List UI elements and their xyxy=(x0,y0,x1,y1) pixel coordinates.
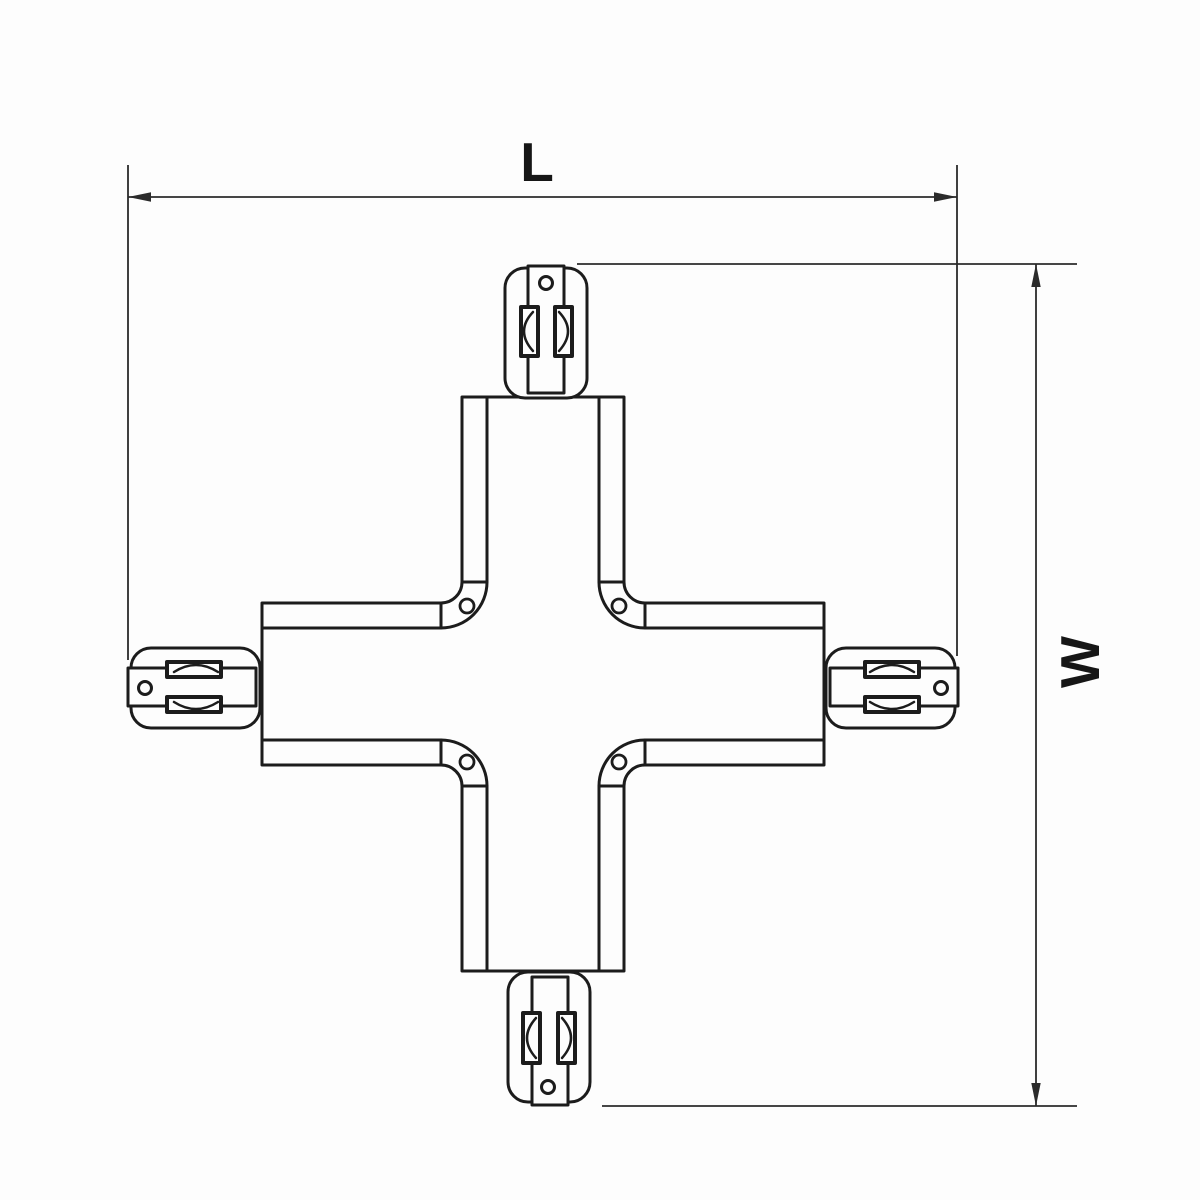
track-connector-x-drawing: L W xyxy=(0,0,1200,1200)
width-label: W xyxy=(1049,636,1111,688)
right-connector-end xyxy=(826,648,958,728)
contact-slot xyxy=(558,1013,575,1063)
technical-drawing-canvas: L W xyxy=(0,0,1200,1200)
length-label: L xyxy=(520,131,554,193)
contact-slot xyxy=(555,307,572,356)
top-connector-end xyxy=(505,266,587,398)
contact-slot xyxy=(523,1013,540,1063)
bottom-connector-end xyxy=(508,972,590,1105)
left-connector-end xyxy=(128,648,260,728)
